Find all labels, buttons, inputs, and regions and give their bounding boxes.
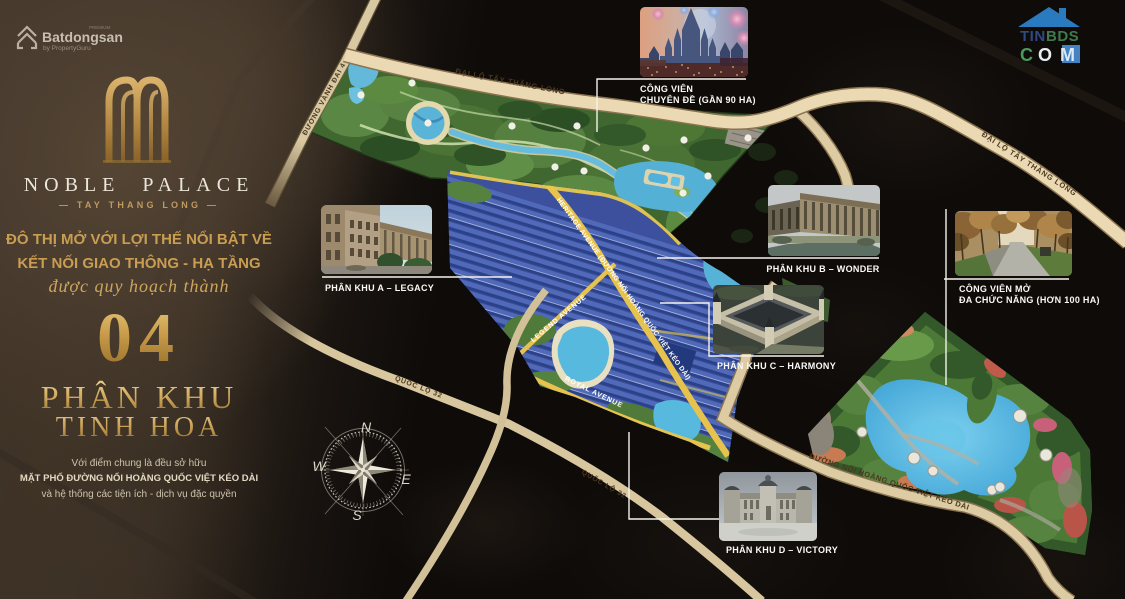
svg-text:QUỐC LỘ 32: QUỐC LỘ 32 bbox=[394, 372, 445, 399]
svg-text:Batdongsan: Batdongsan bbox=[42, 29, 123, 45]
svg-text:PHÂN KHU D – VICTORY: PHÂN KHU D – VICTORY bbox=[726, 544, 838, 555]
svg-text:CHUYÊN ĐỀ (GẦN 90 HA): CHUYÊN ĐỀ (GẦN 90 HA) bbox=[640, 94, 756, 105]
svg-text:E: E bbox=[401, 471, 411, 487]
svg-text:PHÂN KHU C – HARMONY: PHÂN KHU C – HARMONY bbox=[717, 360, 836, 371]
svg-text:PHÂN KHU A – LEGACY: PHÂN KHU A – LEGACY bbox=[325, 282, 434, 293]
svg-text:PREMIUM: PREMIUM bbox=[89, 25, 111, 30]
svg-text:CÔNG VIÊN MỞ: CÔNG VIÊN MỞ bbox=[959, 283, 1031, 294]
svg-text:ĐẠI LỘ TÂY THĂNG LONG: ĐẠI LỘ TÂY THĂNG LONG bbox=[980, 130, 1079, 198]
svg-text:BDS: BDS bbox=[1046, 28, 1079, 45]
svg-text:N: N bbox=[361, 419, 372, 435]
svg-text:CÔNG VIÊN: CÔNG VIÊN bbox=[640, 83, 693, 94]
svg-text:TIN: TIN bbox=[1020, 28, 1046, 45]
svg-text:W: W bbox=[312, 458, 327, 474]
svg-text:M: M bbox=[1060, 45, 1075, 65]
svg-text:ĐA CHỨC NĂNG (HƠN 100 HA): ĐA CHỨC NĂNG (HƠN 100 HA) bbox=[959, 294, 1100, 305]
svg-text:S: S bbox=[352, 507, 362, 523]
svg-text:O: O bbox=[1038, 45, 1052, 65]
svg-text:by PropertyGuru: by PropertyGuru bbox=[43, 45, 91, 52]
svg-text:PHÂN KHU B – WONDER: PHÂN KHU B – WONDER bbox=[766, 263, 879, 274]
svg-text:C: C bbox=[1020, 45, 1033, 65]
